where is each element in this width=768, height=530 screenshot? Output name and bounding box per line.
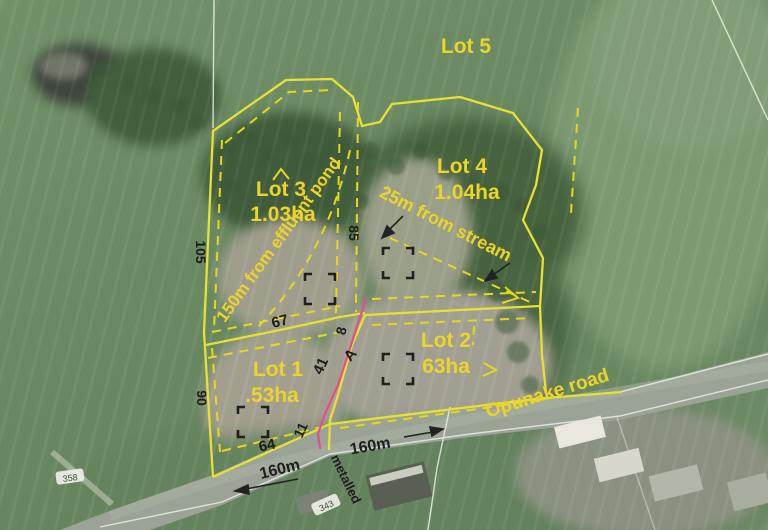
arrowhead bbox=[485, 270, 497, 281]
dim-90: 90 bbox=[194, 390, 210, 406]
road-marker-west-text: 358 bbox=[62, 472, 78, 484]
label-lot4: Lot 4 bbox=[437, 155, 487, 178]
platform-lot1 bbox=[238, 407, 268, 437]
dim-85: 85 bbox=[346, 225, 362, 241]
building bbox=[727, 473, 768, 512]
dash-lot5 bbox=[571, 108, 578, 213]
platform-lot4 bbox=[383, 248, 413, 278]
dash-lot13-south bbox=[208, 332, 340, 358]
platform-lot2 bbox=[383, 354, 413, 384]
plan-overlay: Lot 5 Lot 3 1.03ha Lot 4 1.04ha Lot 1 .5… bbox=[0, 0, 768, 530]
dash-west-lower bbox=[212, 348, 220, 452]
label-lot4-area: 1.04ha bbox=[434, 181, 500, 204]
dim-41: 41 bbox=[310, 355, 332, 377]
point-a: A bbox=[341, 345, 361, 364]
chevron bbox=[483, 363, 496, 376]
label-lot2: Lot 2 bbox=[421, 329, 471, 352]
label-lot2-area: 63ha bbox=[422, 355, 470, 378]
fence-north bbox=[213, 0, 214, 128]
fence-topright bbox=[712, 0, 768, 120]
tree-canopy-texture bbox=[91, 61, 549, 394]
road-marker-west: 358 bbox=[55, 468, 85, 485]
label-lot1-area: .53ha bbox=[245, 384, 299, 407]
building bbox=[649, 464, 704, 501]
fence-lines bbox=[100, 0, 768, 530]
label-lot1: Lot 1 bbox=[253, 358, 303, 381]
dim-8: 8 bbox=[332, 325, 349, 337]
dim-105: 105 bbox=[193, 240, 209, 264]
aerial-map-viewport: Lot 5 Lot 3 1.03ha Lot 4 1.04ha Lot 1 .5… bbox=[0, 0, 768, 530]
dash-lot2-east-short bbox=[473, 326, 474, 345]
label-lot5: Lot 5 bbox=[441, 35, 491, 58]
platform-lot3 bbox=[305, 274, 335, 304]
building-platform-markers bbox=[238, 248, 413, 437]
